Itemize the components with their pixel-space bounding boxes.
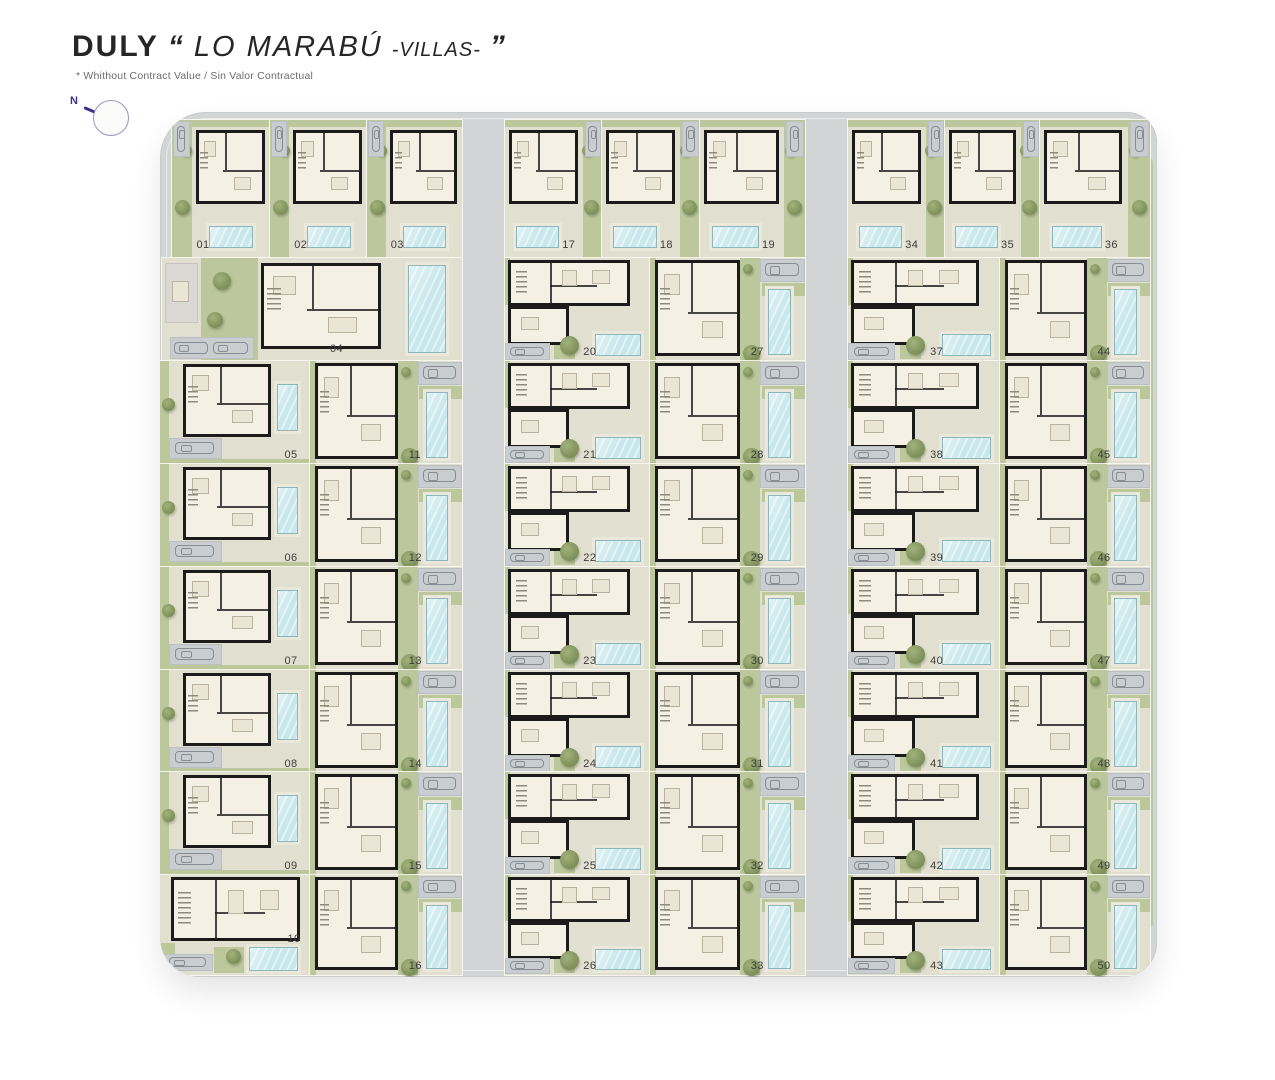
wall-partition — [350, 366, 352, 414]
car-icon — [854, 553, 889, 562]
pool — [426, 598, 449, 664]
house-footprint — [315, 672, 399, 768]
furniture — [592, 682, 611, 696]
wall-partition — [1040, 675, 1042, 723]
car-icon — [177, 126, 185, 152]
site-plan-page: DULY “ LO MARABÚ -VILLAS- ” * Whithout C… — [0, 0, 1275, 1080]
house-footprint — [1005, 363, 1088, 459]
furniture — [232, 719, 253, 732]
house-footprint — [851, 922, 915, 959]
stairs — [320, 597, 329, 622]
wall-partition — [350, 880, 352, 927]
villa-plot-25: 25 — [505, 772, 650, 875]
garden-strip — [160, 464, 169, 567]
car-icon — [510, 656, 543, 665]
furniture — [1050, 630, 1070, 648]
car-icon — [423, 880, 456, 893]
pool — [426, 701, 449, 767]
parking-spot — [760, 465, 805, 488]
villa-plot-34: 34 — [848, 120, 945, 258]
stairs — [859, 271, 871, 294]
villa-number: 04 — [330, 343, 343, 355]
parking-spot — [848, 652, 895, 668]
villa-number: 22 — [583, 552, 596, 564]
pool — [595, 848, 641, 870]
villa-number: 33 — [751, 960, 764, 972]
car-icon — [1112, 263, 1144, 276]
stairs — [1010, 700, 1019, 725]
wall-partition — [1040, 880, 1042, 927]
villa-plot-44: 44 — [1000, 258, 1150, 361]
furniture — [361, 733, 381, 751]
tree-icon — [560, 439, 579, 458]
villa-number: 21 — [583, 449, 596, 461]
parking-spot — [760, 876, 805, 898]
wall-partition — [550, 777, 552, 817]
parking-spot — [505, 857, 550, 873]
stairs — [660, 391, 670, 416]
house-footprint — [655, 569, 740, 665]
wall-partition — [895, 777, 897, 817]
wall-partition — [691, 675, 693, 723]
stairs — [320, 802, 329, 827]
car-icon — [275, 126, 283, 152]
stairs — [859, 477, 871, 500]
stairs — [320, 391, 329, 416]
villa-number: 26 — [583, 960, 596, 972]
car-icon — [686, 126, 694, 152]
parking-spot — [848, 857, 895, 873]
stairs — [1010, 391, 1019, 416]
pool — [768, 905, 791, 969]
house-footprint — [949, 130, 1016, 205]
house-footprint — [655, 672, 740, 768]
stairs — [1010, 288, 1019, 313]
pool — [277, 693, 298, 740]
pool — [516, 226, 560, 248]
parking-spot — [928, 121, 944, 157]
car-icon — [854, 347, 889, 356]
villa-plot-47: 47 — [1000, 567, 1150, 670]
villa-number: 08 — [285, 758, 298, 770]
wall-partition — [1037, 826, 1084, 828]
pool — [768, 495, 791, 561]
open-quote: “ — [168, 30, 181, 64]
villa-plot-03: 03 — [367, 120, 462, 258]
villa-plot-36: 36 — [1040, 120, 1150, 258]
stairs — [516, 580, 528, 603]
villa-number: 19 — [762, 239, 775, 251]
villa-plot-30: 30 — [650, 567, 805, 670]
stairs — [611, 152, 619, 171]
furniture — [864, 317, 884, 330]
wall-partition — [347, 826, 395, 828]
house-footprint — [508, 615, 569, 653]
stairs — [859, 683, 871, 706]
car-icon — [174, 342, 208, 354]
furniture — [746, 177, 764, 191]
wall-partition — [691, 366, 693, 414]
furniture — [1050, 321, 1070, 339]
house-footprint — [851, 260, 979, 306]
car-icon — [213, 342, 247, 354]
house-footprint — [655, 466, 740, 562]
villa-plot-17: 17 — [505, 120, 602, 258]
tree-icon — [682, 200, 697, 215]
furniture — [864, 626, 884, 639]
pool — [277, 590, 298, 637]
furniture — [939, 579, 958, 593]
parking-spot — [505, 652, 550, 668]
stairs — [200, 152, 208, 171]
car-icon — [765, 675, 798, 688]
villa-number: 02 — [294, 239, 307, 251]
villa-plot-29: 29 — [650, 464, 805, 567]
wall-partition — [217, 403, 268, 405]
wall-partition — [895, 366, 897, 406]
car-icon — [175, 648, 214, 660]
wall-partition — [217, 506, 268, 508]
furniture — [331, 177, 347, 191]
villa-plot-33: 33 — [650, 875, 805, 975]
tree-icon — [787, 200, 802, 215]
stairs — [178, 892, 190, 924]
furniture — [562, 887, 577, 903]
furniture — [562, 373, 577, 389]
house-footprint — [1005, 672, 1088, 768]
villa-plot-40: 40 — [848, 567, 1000, 670]
house-footprint — [261, 263, 381, 348]
stairs — [320, 904, 329, 928]
furniture — [908, 784, 924, 800]
house-footprint — [852, 130, 921, 205]
wall-partition — [1040, 469, 1042, 517]
wall-partition — [881, 133, 883, 170]
wall-partition — [1078, 133, 1080, 170]
furniture — [702, 936, 723, 953]
villa-number: 18 — [660, 239, 673, 251]
furniture — [645, 177, 662, 191]
wall-partition — [350, 777, 352, 825]
house-footprint — [1005, 774, 1088, 870]
house-footprint — [390, 130, 457, 205]
parking-spot — [505, 958, 550, 974]
house-footprint — [509, 130, 578, 205]
wall-partition — [736, 133, 738, 170]
disclaimer-text: * Whithout Contract Value / Sin Valor Co… — [76, 70, 313, 82]
house-footprint — [508, 718, 569, 756]
wall-partition — [217, 609, 268, 611]
furniture — [361, 835, 381, 853]
villa-number: 28 — [751, 449, 764, 461]
parking-spot — [760, 362, 805, 385]
furniture — [232, 410, 253, 423]
wall-partition — [347, 621, 395, 623]
pool — [595, 643, 641, 665]
parking-spot — [418, 773, 462, 796]
house-footprint — [851, 820, 915, 858]
wall-partition — [895, 675, 897, 715]
villa-number: 14 — [409, 758, 422, 770]
house-footprint — [851, 512, 915, 550]
villa-number: 24 — [583, 758, 596, 770]
stairs — [514, 152, 522, 171]
house-footprint — [508, 672, 630, 718]
house-footprint — [315, 466, 399, 562]
furniture — [562, 682, 577, 698]
villa-number: 47 — [1098, 655, 1111, 667]
parking-spot — [1107, 259, 1151, 282]
wall-partition — [879, 170, 918, 172]
furniture — [864, 932, 884, 944]
parking-spot — [1107, 465, 1151, 488]
car-icon — [175, 545, 214, 557]
car-icon — [790, 126, 799, 152]
villa-plot-23: 23 — [505, 567, 650, 670]
stairs — [660, 288, 670, 313]
villa-number: 42 — [930, 860, 943, 872]
brand-name: DULY — [72, 30, 159, 64]
wall-partition — [733, 170, 775, 172]
car-icon — [1112, 366, 1144, 379]
parking-spot — [169, 541, 222, 562]
stairs — [516, 683, 528, 706]
house-footprint — [315, 774, 399, 870]
parking-spot — [848, 549, 895, 565]
car-icon — [175, 853, 214, 865]
pool — [595, 949, 641, 970]
wall-partition — [416, 170, 454, 172]
close-quote: ” — [490, 30, 503, 64]
pool — [1114, 392, 1137, 458]
villa-number: 44 — [1098, 346, 1111, 358]
furniture — [1050, 733, 1070, 751]
parking-spot — [1107, 876, 1151, 898]
furniture — [908, 270, 924, 286]
house-footprint — [1044, 130, 1122, 205]
house-footprint — [315, 877, 399, 970]
car-icon — [1027, 126, 1035, 152]
car-icon — [1135, 126, 1144, 152]
house-footprint — [606, 130, 676, 205]
villa-number: 12 — [409, 552, 422, 564]
tree-icon — [162, 604, 175, 617]
wall-partition — [691, 572, 693, 620]
parking-spot — [173, 121, 190, 157]
pool — [426, 803, 449, 869]
compass-icon — [93, 100, 129, 136]
pool — [942, 643, 991, 665]
villa-plot-02: 02 — [270, 120, 367, 258]
wall-partition — [220, 676, 222, 712]
wall-partition — [895, 263, 897, 303]
parking-spot — [1107, 362, 1151, 385]
car-icon — [423, 572, 456, 585]
house-footprint — [183, 570, 272, 643]
furniture — [592, 579, 611, 593]
pool — [942, 746, 991, 768]
villa-number: 32 — [751, 860, 764, 872]
parking-spot — [418, 465, 462, 488]
car-icon — [1112, 777, 1144, 790]
villa-plot-04: 04 — [162, 258, 462, 361]
pool — [768, 598, 791, 664]
pool — [1114, 289, 1137, 355]
furniture — [986, 177, 1002, 191]
pool — [1052, 226, 1102, 248]
wall-partition — [550, 366, 552, 406]
parking-spot — [848, 446, 895, 462]
furniture — [232, 616, 253, 629]
car-icon — [765, 777, 798, 790]
tree-icon — [370, 200, 385, 215]
wall-partition — [895, 572, 897, 612]
villa-number: 13 — [409, 655, 422, 667]
car-icon — [1112, 572, 1144, 585]
furniture — [547, 177, 563, 191]
car-icon — [372, 126, 380, 152]
pool — [595, 540, 641, 562]
car-icon — [510, 553, 543, 562]
car-icon — [1112, 469, 1144, 482]
villa-plot-12: 12 — [310, 464, 462, 567]
wall-partition — [978, 133, 980, 170]
tree-icon — [906, 748, 925, 767]
furniture — [562, 270, 577, 286]
wall-partition — [550, 675, 552, 715]
house-footprint — [655, 260, 740, 356]
furniture — [361, 630, 381, 648]
furniture — [232, 821, 253, 834]
villa-number: 11 — [409, 449, 421, 461]
tree-icon — [743, 881, 753, 891]
parking-spot — [418, 362, 462, 385]
pool — [768, 803, 791, 869]
wall-partition — [220, 778, 222, 814]
tree-icon — [906, 645, 925, 664]
car-icon — [510, 961, 543, 970]
garden-strip — [160, 772, 169, 875]
furniture — [592, 270, 611, 284]
car-icon — [854, 861, 889, 870]
tree-icon — [560, 645, 579, 664]
pool — [1114, 495, 1137, 561]
furniture — [1050, 424, 1070, 442]
villa-plot-42: 42 — [848, 772, 1000, 875]
house-footprint — [293, 130, 362, 205]
furniture — [562, 784, 577, 800]
stairs — [660, 700, 670, 725]
car-icon — [510, 347, 543, 356]
car-icon — [423, 366, 456, 379]
wall-partition — [895, 469, 897, 509]
wall-partition — [688, 415, 737, 417]
villa-number: 34 — [905, 239, 918, 251]
tree-icon — [560, 951, 579, 970]
tree-icon — [560, 748, 579, 767]
car-icon — [765, 263, 798, 276]
furniture — [864, 729, 884, 742]
wall-partition — [220, 470, 222, 506]
wall-partition — [688, 927, 737, 929]
pool — [1114, 905, 1137, 969]
villa-number: 06 — [285, 552, 298, 564]
parking-spot — [848, 755, 895, 771]
pool — [595, 746, 641, 768]
wall-partition — [347, 415, 395, 417]
wall-partition — [688, 621, 737, 623]
villa-plot-22: 22 — [505, 464, 650, 567]
pool — [942, 437, 991, 459]
pool — [859, 226, 903, 248]
villa-number: 25 — [583, 860, 596, 872]
house-footprint — [183, 775, 272, 848]
pool — [768, 701, 791, 767]
car-icon — [423, 469, 456, 482]
tree-icon — [906, 439, 925, 458]
tree-icon — [906, 336, 925, 355]
pool — [426, 392, 449, 458]
pool — [277, 795, 298, 842]
wall-partition — [550, 263, 552, 303]
parking-spot — [271, 121, 287, 157]
villa-plot-14: 14 — [310, 670, 462, 773]
house-footprint — [851, 672, 979, 718]
wall-partition — [550, 572, 552, 612]
furniture — [328, 317, 358, 333]
house-footprint — [1005, 569, 1088, 665]
pool — [712, 226, 759, 248]
villa-plot-28: 28 — [650, 361, 805, 464]
villa-plot-46: 46 — [1000, 464, 1150, 567]
parking-spot — [1107, 568, 1151, 591]
car-icon — [854, 759, 889, 768]
furniture — [562, 476, 577, 492]
parking-spot — [418, 876, 462, 898]
villa-plot-49: 49 — [1000, 772, 1150, 875]
villa-number: 29 — [751, 552, 764, 564]
house-footprint — [655, 363, 740, 459]
furniture — [361, 424, 381, 442]
parking-spot — [1107, 773, 1151, 796]
tree-icon — [162, 707, 175, 720]
tree-icon — [207, 312, 223, 328]
pool — [942, 848, 991, 870]
parking-spot — [682, 121, 699, 157]
tree-icon — [906, 951, 925, 970]
villa-plot-27: 27 — [650, 258, 805, 361]
pool — [1114, 598, 1137, 664]
parking-spot — [418, 568, 462, 591]
wall-partition — [1037, 621, 1084, 623]
parking-spot — [848, 343, 895, 359]
wall-partition — [1037, 724, 1084, 726]
wall-partition — [636, 133, 638, 170]
furniture — [361, 936, 381, 953]
house-footprint — [508, 512, 569, 550]
parking-spot — [170, 337, 254, 359]
wall-partition — [691, 263, 693, 311]
villa-number: 15 — [409, 860, 422, 872]
villa-number: 45 — [1098, 449, 1111, 461]
pool — [426, 905, 449, 969]
pool — [768, 289, 791, 355]
furniture — [702, 321, 723, 339]
tree-icon — [162, 398, 175, 411]
wall-partition — [1040, 572, 1042, 620]
wall-partition — [688, 724, 737, 726]
garden-strip — [160, 567, 169, 670]
